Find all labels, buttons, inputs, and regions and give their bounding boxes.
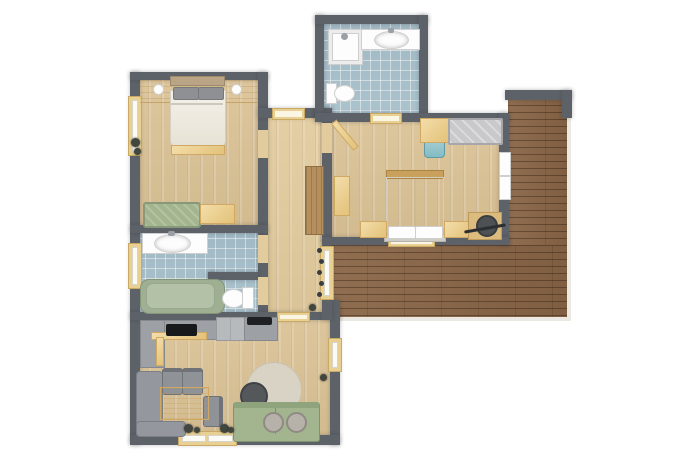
plant-living-right (320, 374, 327, 381)
plant-living-d (228, 427, 234, 433)
sink-bathroom1 (154, 234, 191, 253)
daybed-bench-bedroom2 (448, 118, 503, 145)
door-bathroom2-threshold (370, 113, 402, 124)
wall-lamp-left (153, 84, 164, 95)
wall-lamp-right (231, 84, 242, 95)
kitchen-sink-basin (247, 317, 272, 325)
bed-1-pillow-left (173, 87, 199, 100)
window-living-bottom (178, 431, 237, 446)
cabinet-bedroom2-left (334, 176, 350, 216)
wall-bathroom2-left (315, 15, 324, 122)
plant-hall-bottom (309, 304, 316, 311)
door-vestibule-bedroom2 (322, 123, 332, 153)
bed-1-foot-bench (171, 145, 225, 155)
toilet-wc-tank (242, 287, 254, 309)
desk-bedroom2 (420, 118, 449, 143)
sofa-tray-right (286, 412, 307, 433)
bathtub-inner (146, 283, 215, 309)
door-bathroom1 (258, 235, 268, 263)
bed-2-pillow-right (415, 226, 443, 239)
french-door-leaf-top (499, 152, 511, 176)
floor-terrace-bottom (330, 245, 571, 321)
corner-bench-horizontal (136, 421, 186, 437)
wall-bathroom2-right (419, 15, 428, 122)
cooktop (166, 324, 197, 336)
door-hall-living-threshold (277, 312, 310, 322)
window-bedroom1 (128, 96, 142, 156)
kitchen-trim-vertical (156, 337, 164, 366)
toilet-bathroom2-bowl (334, 85, 355, 102)
coat-hook-2 (319, 259, 324, 264)
coat-hook-5 (317, 292, 322, 297)
bed-2-duvet (386, 177, 444, 228)
sink-bathroom2 (374, 31, 409, 49)
sofa-bench-bedroom1 (143, 202, 201, 228)
door-wc (258, 277, 268, 305)
sofa-tray-left (263, 412, 284, 433)
faucet-bathroom2 (388, 28, 394, 33)
shower-head (341, 33, 348, 40)
bed-1-pillow-right (198, 87, 224, 100)
hall-wardrobe (305, 166, 324, 235)
plant-living-b (194, 427, 200, 433)
plant-bedroom1-b (134, 148, 141, 155)
storage-chest-bedroom1 (200, 204, 235, 224)
wall-terrace-right-return (562, 90, 572, 118)
wall-bathroom2-top (315, 15, 428, 24)
door-bedroom1 (258, 130, 268, 158)
window-bathroom1 (128, 243, 142, 289)
coat-hook-1 (317, 248, 322, 253)
plant-living-a (184, 424, 193, 433)
coat-hook-4 (319, 281, 324, 286)
kitchen-tall-cabinet (216, 317, 246, 341)
window-living-right (328, 338, 342, 372)
french-door-leaf-bottom (499, 176, 511, 200)
nightstand-left (360, 221, 387, 238)
faucet-bathroom1 (168, 231, 175, 236)
plant-bedroom1-a (131, 138, 140, 147)
floor-plan (0, 0, 700, 467)
window-hall-terrace (320, 246, 334, 300)
bed-1-fold-line (171, 103, 223, 105)
coat-hook-3 (317, 270, 322, 275)
entry-door-threshold (272, 108, 305, 120)
dining-table (160, 387, 209, 420)
wall-shelf (170, 76, 225, 86)
wall-living-right (330, 300, 340, 445)
bed-2-pillow-left (388, 226, 416, 239)
